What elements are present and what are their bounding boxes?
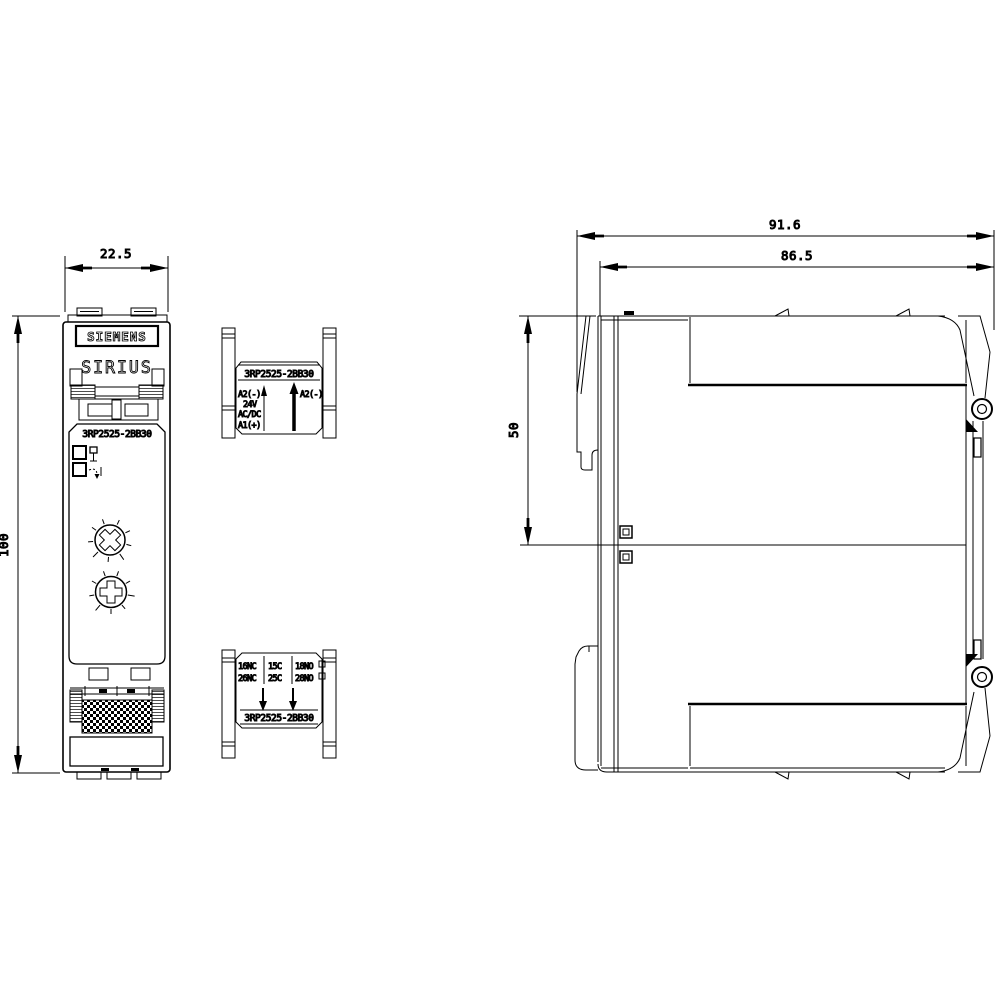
dimension-depth-body: 86.5 <box>600 248 994 316</box>
dimension-width-value: 22.5 <box>100 246 132 261</box>
range-dial-icon[interactable] <box>88 519 131 562</box>
dimension-front-height-value: 50 <box>506 422 521 438</box>
wiring-arrow-thin-icon <box>261 385 267 431</box>
contact-label-16nc: 16NC <box>238 662 257 672</box>
side-view <box>520 309 992 779</box>
front-product-code: 3RP2525-2BB30 <box>82 429 152 440</box>
bottom-terminal-block: 16NC 15C 18NO 26NC 25C 28NO 3RP2525-2BB3… <box>222 650 336 758</box>
upper-front-claw <box>577 316 598 470</box>
time-dial-icon[interactable] <box>89 571 134 614</box>
top-block-product-code: 3RP2525-2BB30 <box>244 369 314 380</box>
timing-arrow-icon <box>89 467 101 479</box>
dimension-drawing: SIEMENS SIRIUS 3RP2525-2BB30 <box>0 0 1000 1000</box>
contact-label-25c: 25C <box>268 674 282 684</box>
data-matrix-code <box>82 700 152 733</box>
led-output-icon <box>73 463 86 476</box>
top-recess <box>688 317 967 385</box>
din-clip-slider[interactable] <box>973 421 983 659</box>
dimension-height-value: 100 <box>0 533 11 557</box>
led-indicators <box>73 446 101 479</box>
terminal-label-a1: A1(+) <box>238 421 261 431</box>
top-mounting-clips <box>68 308 167 322</box>
wiring-arrow-down-icon <box>259 688 267 711</box>
bottom-block-product-code: 3RP2525-2BB30 <box>244 713 314 724</box>
terminal-label-a2: A2(-) <box>238 390 261 400</box>
side-led-windows <box>620 526 632 563</box>
top-terminal-block: 3RP2525-2BB30 A2(-) 24V AC/DC A1(+) A2(-… <box>222 328 336 438</box>
housing-tabs <box>775 309 910 779</box>
dimension-depth-body-value: 86.5 <box>781 248 813 263</box>
bottom-recess <box>688 704 967 768</box>
dimension-depth-overall-value: 91.6 <box>769 217 801 232</box>
contact-label-28no: 28NO <box>295 674 314 684</box>
terminal-label-24v: 24V <box>243 400 257 410</box>
front-view: SIEMENS SIRIUS 3RP2525-2BB30 <box>63 308 170 779</box>
dimension-width: 22.5 <box>65 246 168 312</box>
bottom-feet <box>77 768 161 779</box>
terminal-label-a2-right: A2(-) <box>300 390 323 400</box>
contact-label-18no: 18NO <box>295 662 314 672</box>
dimension-drawing-page: SIEMENS SIRIUS 3RP2525-2BB30 <box>0 0 1000 1000</box>
terminal-label-acdc: AC/DC <box>238 410 261 420</box>
led-power-icon <box>73 446 86 459</box>
lower-front-claw <box>575 646 598 770</box>
dimension-height: 100 <box>0 316 60 773</box>
contact-label-26nc: 26NC <box>238 674 257 684</box>
dimension-depth-overall: 91.6 <box>577 217 994 392</box>
series-label: SIRIUS <box>81 358 153 377</box>
wiring-arrow-thick-icon <box>290 382 299 431</box>
relay-contact-icon <box>90 447 97 461</box>
wiring-arrow-down-icon <box>289 688 297 711</box>
brand-label: SIEMENS <box>87 329 147 344</box>
brand-logo: SIEMENS <box>76 326 158 346</box>
din-clip-bottom[interactable] <box>938 654 992 772</box>
label-field <box>70 737 163 766</box>
contact-label-15c: 15C <box>268 662 282 672</box>
din-clip-top[interactable] <box>938 316 992 432</box>
